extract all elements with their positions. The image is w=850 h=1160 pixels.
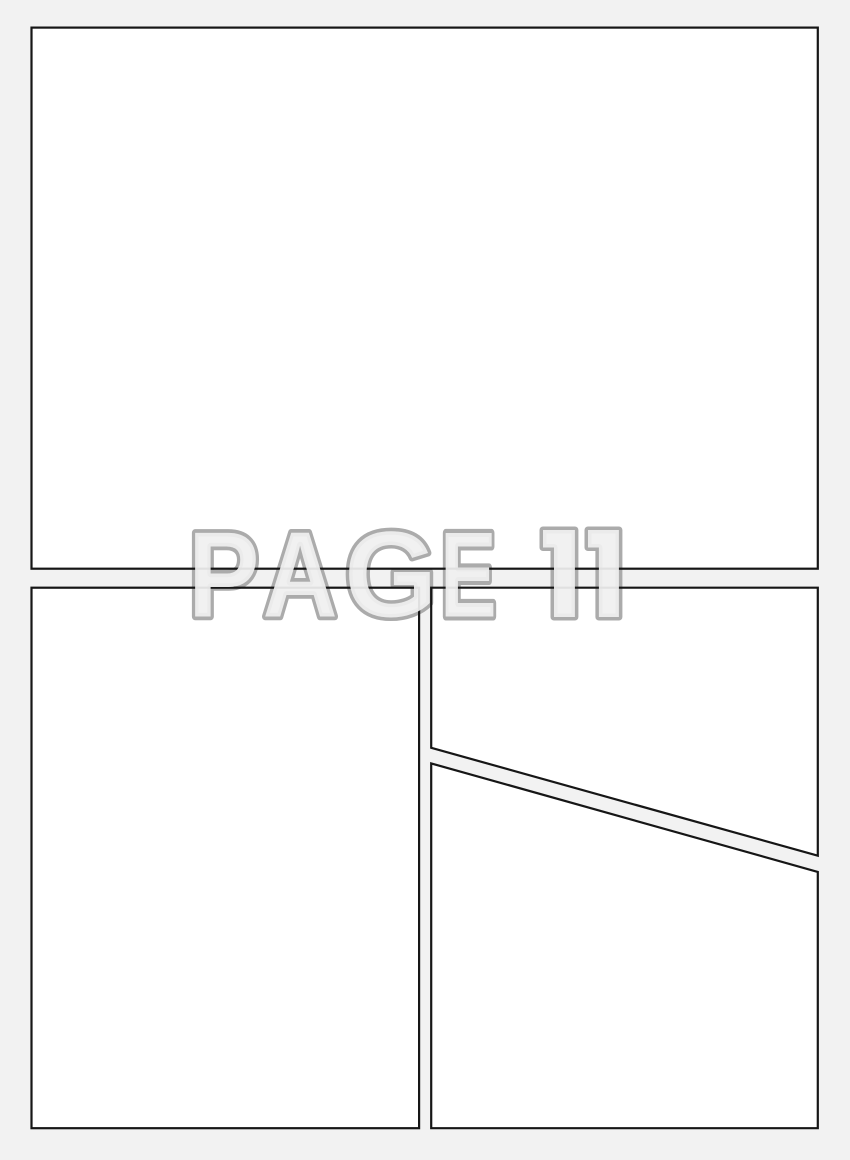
svg-text:A: A (263, 507, 338, 644)
svg-text:E: E (440, 507, 497, 643)
svg-text:G: G (344, 506, 437, 642)
svg-text:P: P (188, 507, 259, 643)
